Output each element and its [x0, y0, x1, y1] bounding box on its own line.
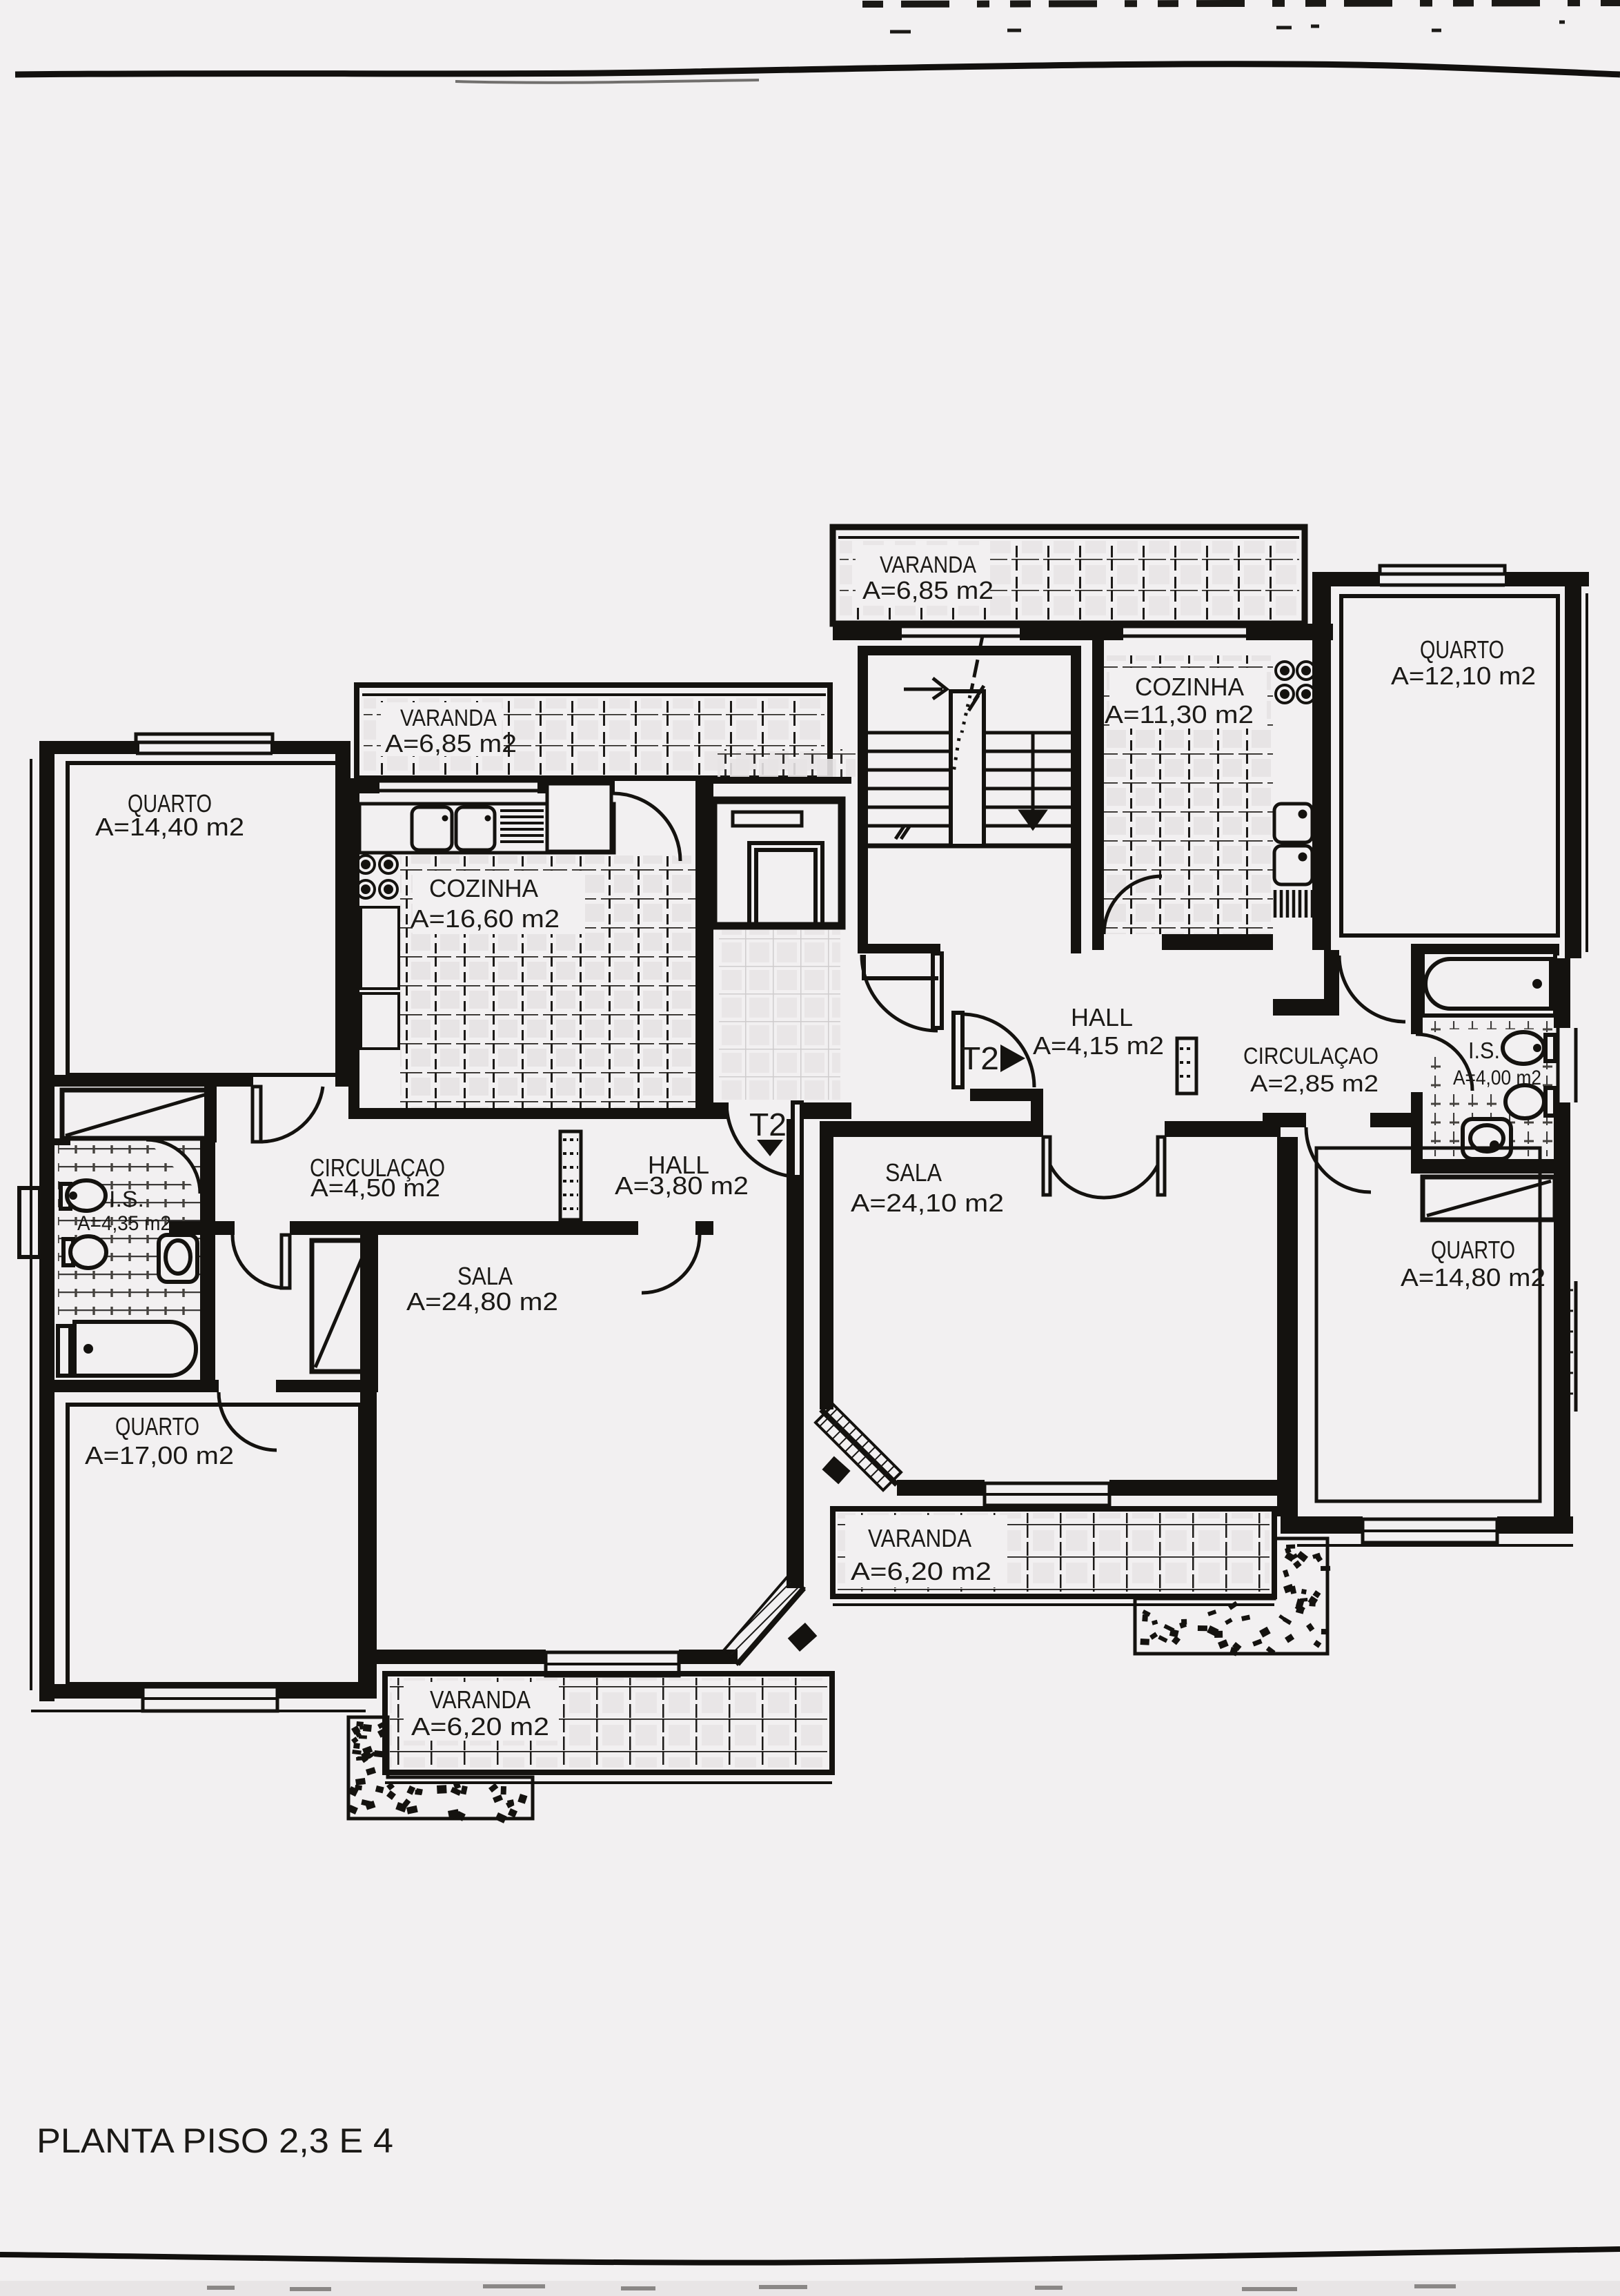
svg-text:A=6,85 m2: A=6,85 m2: [862, 576, 994, 604]
svg-text:QUARTO: QUARTO: [1420, 635, 1504, 664]
svg-text:A=14,80 m2: A=14,80 m2: [1401, 1263, 1545, 1291]
svg-text:PLANTA PISO 2,3 E 4: PLANTA PISO 2,3 E 4: [37, 2121, 393, 2160]
svg-text:QUARTO: QUARTO: [1431, 1236, 1515, 1264]
svg-text:A=2,85 m2: A=2,85 m2: [1250, 1071, 1379, 1097]
svg-text:QUARTO: QUARTO: [115, 1412, 199, 1441]
svg-text:CIRCULAÇAO: CIRCULAÇAO: [1243, 1043, 1379, 1069]
svg-text:A=12,10 m2: A=12,10 m2: [1391, 662, 1536, 690]
svg-text:COZINHA: COZINHA: [1135, 673, 1244, 701]
svg-text:A=16,60 m2: A=16,60 m2: [411, 904, 560, 933]
svg-text:A=11,30 m2: A=11,30 m2: [1105, 700, 1254, 729]
svg-text:A=6,20 m2: A=6,20 m2: [411, 1712, 549, 1741]
svg-text:A=17,00 m2: A=17,00 m2: [85, 1441, 234, 1469]
svg-text:A=4,35 m2: A=4,35 m2: [77, 1212, 171, 1235]
svg-text:A=24,10 m2: A=24,10 m2: [851, 1189, 1004, 1217]
svg-text:A=24,80 m2: A=24,80 m2: [406, 1287, 558, 1316]
svg-text:VARANDA: VARANDA: [868, 1524, 971, 1552]
svg-text:A=4,50 m2: A=4,50 m2: [310, 1174, 440, 1202]
svg-text:A=6,85 m2: A=6,85 m2: [385, 729, 517, 758]
svg-text:VARANDA: VARANDA: [430, 1685, 531, 1714]
svg-text:I.S.: I.S.: [1468, 1038, 1500, 1063]
svg-text:COZINHA: COZINHA: [429, 874, 538, 902]
svg-text:HALL: HALL: [1071, 1003, 1133, 1031]
svg-text:SALA: SALA: [885, 1158, 942, 1187]
svg-text:A=3,80 m2: A=3,80 m2: [615, 1171, 749, 1200]
svg-text:VARANDA: VARANDA: [880, 552, 976, 578]
svg-text:A=4,15 m2: A=4,15 m2: [1033, 1031, 1164, 1060]
svg-text:T2: T2: [960, 1040, 999, 1076]
svg-text:A=14,40 m2: A=14,40 m2: [95, 813, 244, 841]
svg-text:VARANDA: VARANDA: [400, 705, 497, 731]
svg-text:A=6,20 m2: A=6,20 m2: [851, 1557, 991, 1585]
svg-text:I.S.: I.S.: [109, 1187, 144, 1211]
svg-text:T2: T2: [749, 1107, 787, 1142]
svg-text:SALA: SALA: [457, 1262, 513, 1290]
